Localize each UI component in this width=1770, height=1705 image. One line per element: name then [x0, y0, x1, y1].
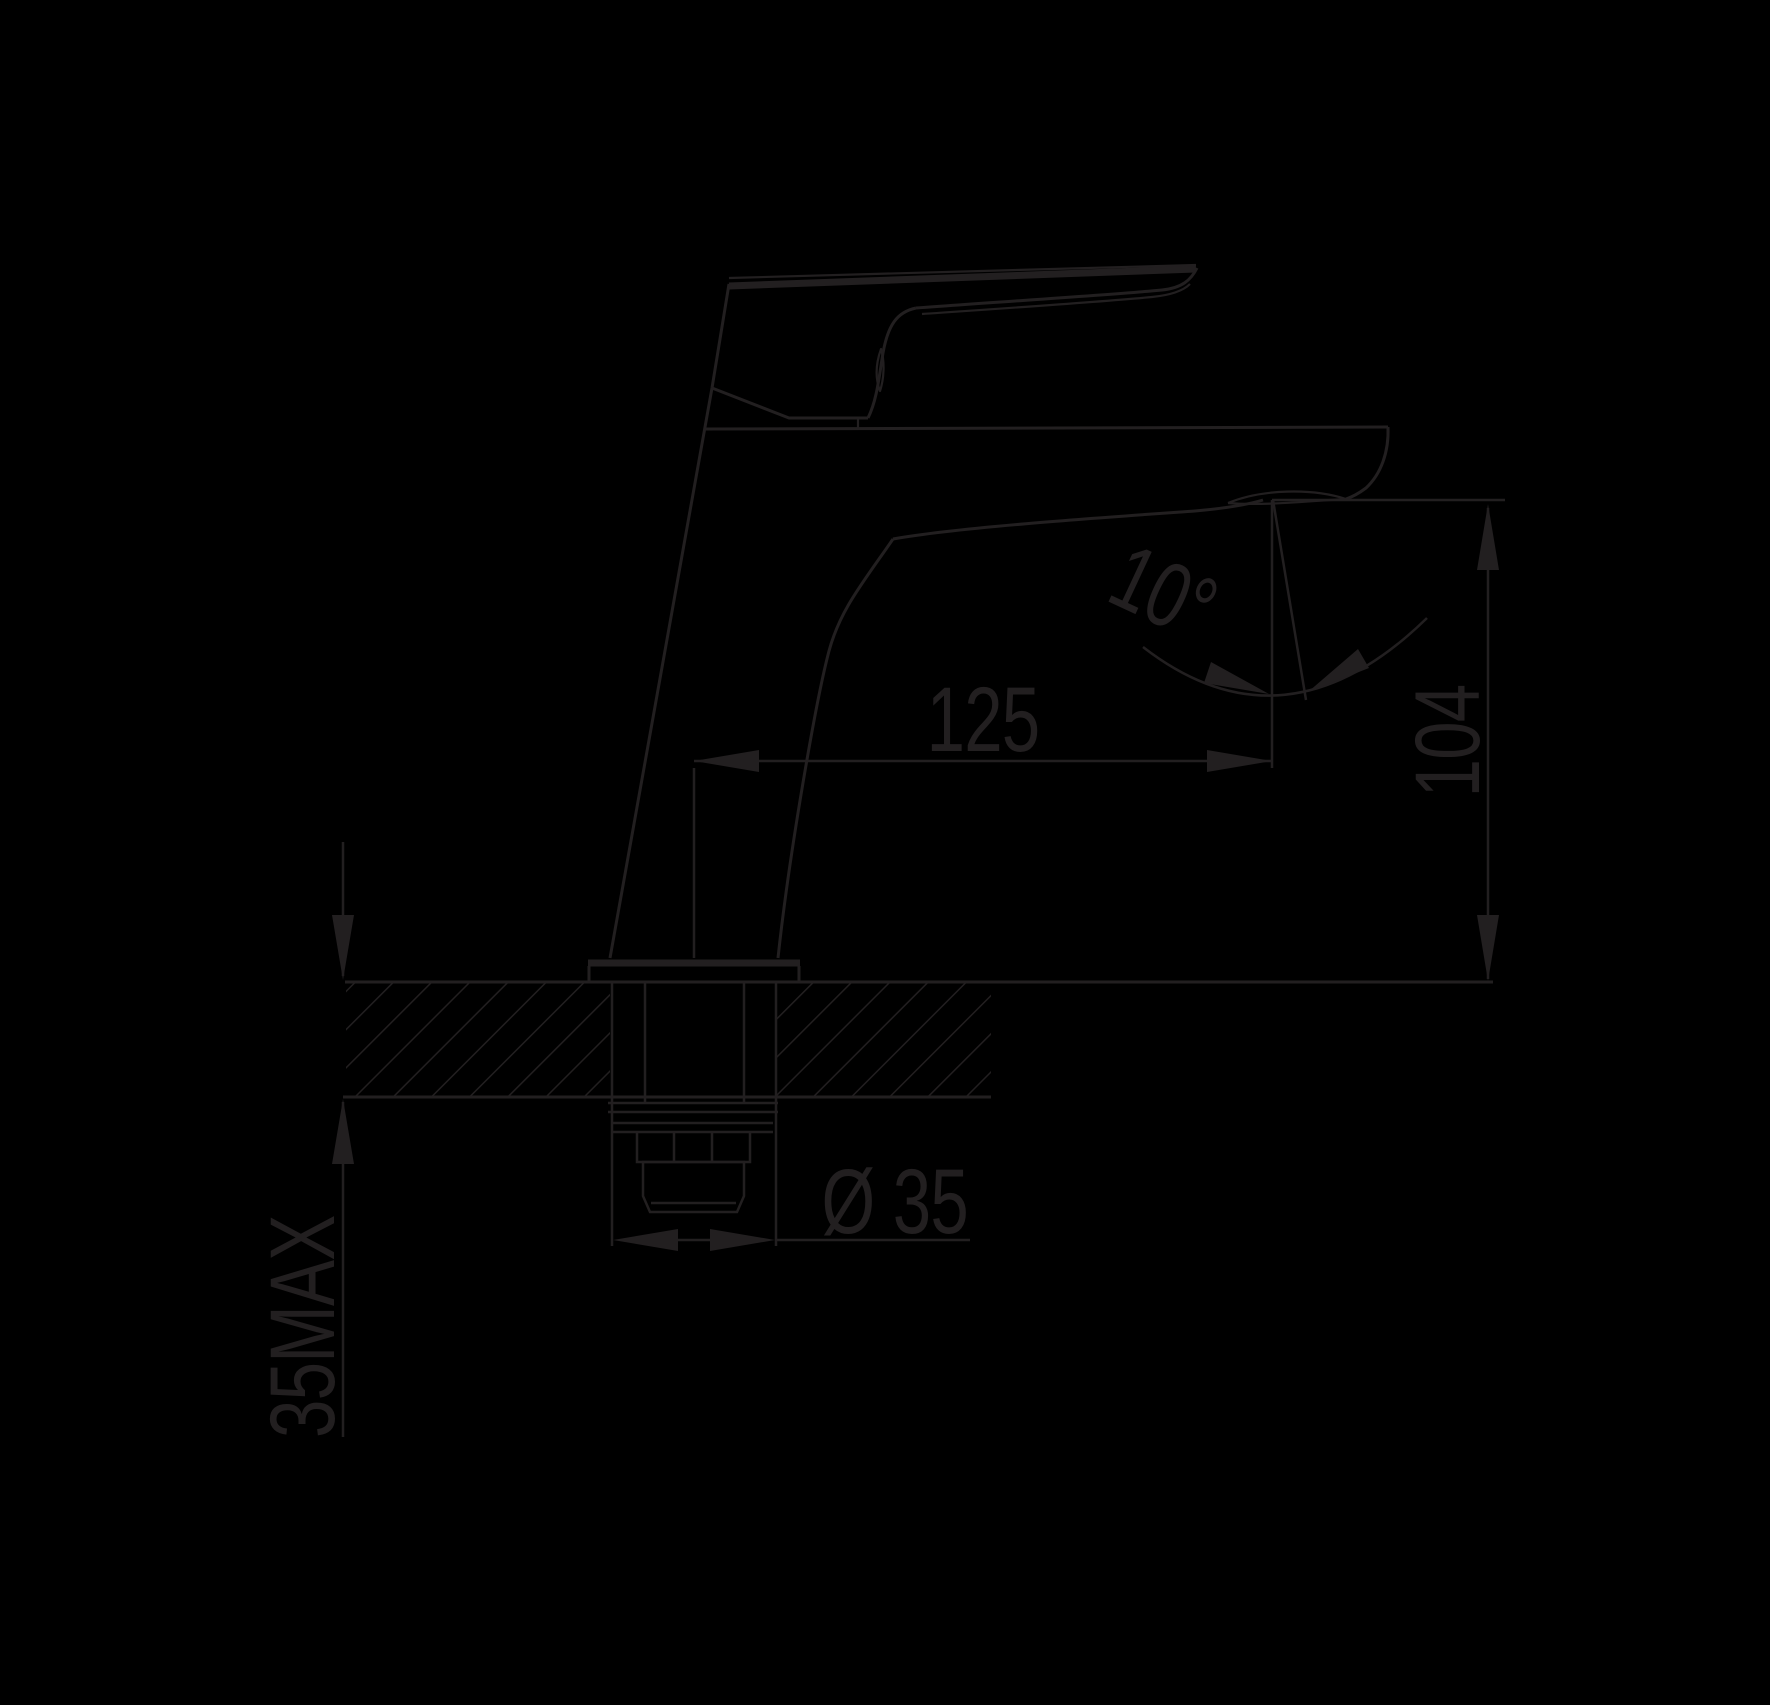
dimension-label-10deg: 10°	[1095, 525, 1231, 661]
arc-arrowhead-right	[1308, 649, 1369, 692]
below-deck-assembly	[608, 982, 778, 1246]
technical-drawing-page: 125 10° 104 Ø 35 35MAX	[0, 0, 1770, 1705]
arrowhead-up	[1477, 504, 1499, 570]
spout-front-edge	[1346, 427, 1388, 499]
lever-front-edge	[712, 284, 729, 388]
arrowhead-right	[710, 1229, 775, 1251]
arrowhead-down	[1477, 915, 1499, 981]
spout-underside-edge	[893, 500, 1263, 539]
shank-end-outline	[643, 1162, 744, 1212]
deck-hatching-right	[776, 983, 991, 1096]
dimension-spout-height: 104	[1272, 500, 1505, 981]
dimension-label-125: 125	[927, 668, 1040, 771]
dimension-spout-angle: 10°	[1095, 500, 1427, 768]
arrowhead-left	[613, 1229, 678, 1251]
body-left-edge	[610, 388, 712, 958]
arrowhead-left	[694, 750, 759, 772]
cartridge-cap-line	[705, 427, 1388, 429]
body-right-edge	[778, 539, 893, 958]
aerator-outlet-top	[1228, 492, 1346, 503]
dimension-deck-thickness: 35MAX	[251, 842, 354, 1438]
arc-arrowhead-left	[1204, 662, 1269, 694]
arrowhead-up	[332, 1099, 354, 1164]
faucet-dimension-drawing: 125 10° 104 Ø 35 35MAX	[0, 0, 1770, 1705]
dimension-label-104: 104	[1396, 685, 1499, 798]
arrowhead-down	[332, 915, 354, 980]
locknut-outline	[637, 1132, 750, 1162]
lever-pivot-curve	[868, 308, 916, 418]
dimension-spout-reach: 125	[694, 668, 1272, 958]
lever-chin-edge	[712, 388, 868, 418]
dimension-label-35max: 35MAX	[251, 1216, 354, 1438]
deck-hatching-left	[346, 983, 610, 1096]
countertop-section	[343, 982, 1493, 1097]
angle-reference-line	[1273, 500, 1306, 700]
arrowhead-right	[1207, 750, 1272, 772]
faucet-outline	[588, 265, 1388, 982]
dimension-label-d35: Ø 35	[821, 1150, 968, 1253]
